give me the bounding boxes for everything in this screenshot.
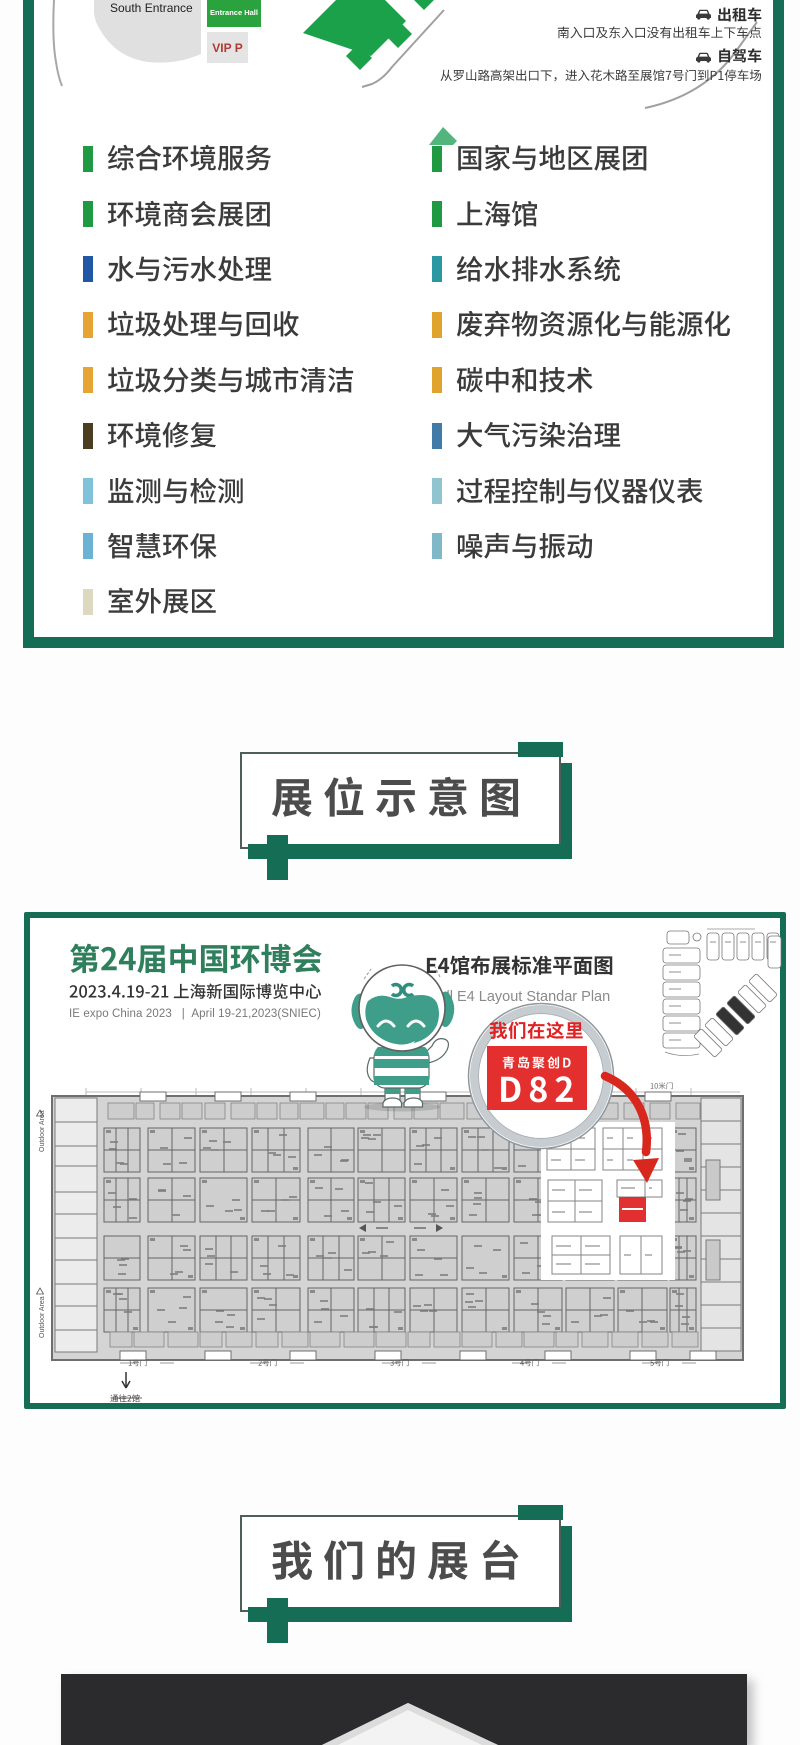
- svg-text:Outdoor Area: Outdoor Area: [39, 1110, 46, 1152]
- svg-text:Outdoor Area: Outdoor Area: [39, 1296, 46, 1338]
